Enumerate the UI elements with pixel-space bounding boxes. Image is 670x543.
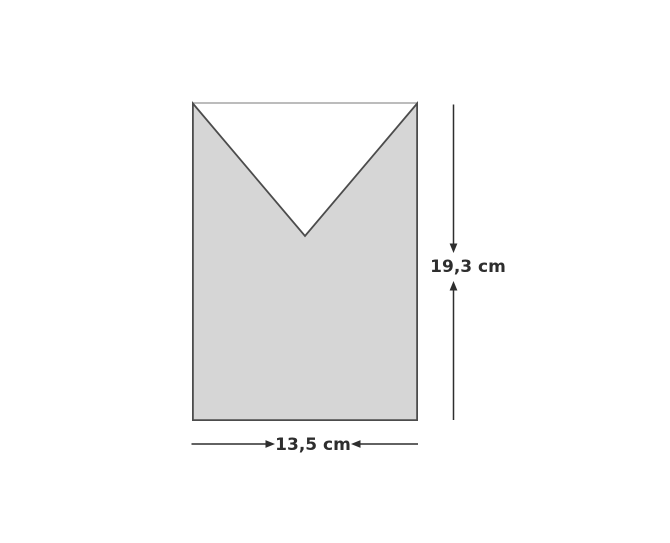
down-arrowhead-icon <box>450 244 458 254</box>
width-dimension: 13,5 cm <box>192 435 419 455</box>
height-label: 19,3 cm <box>430 257 506 277</box>
diagram-canvas: 19,3 cm 13,5 cm <box>0 0 670 543</box>
width-label: 13,5 cm <box>275 435 351 455</box>
notched-rectangle-shape <box>193 104 417 421</box>
left-arrowhead-icon <box>351 440 361 448</box>
up-arrowhead-icon <box>450 281 458 291</box>
right-arrowhead-icon <box>266 440 276 448</box>
geometry-figure: 19,3 cm 13,5 cm <box>0 0 670 543</box>
height-dimension: 19,3 cm <box>430 105 506 421</box>
